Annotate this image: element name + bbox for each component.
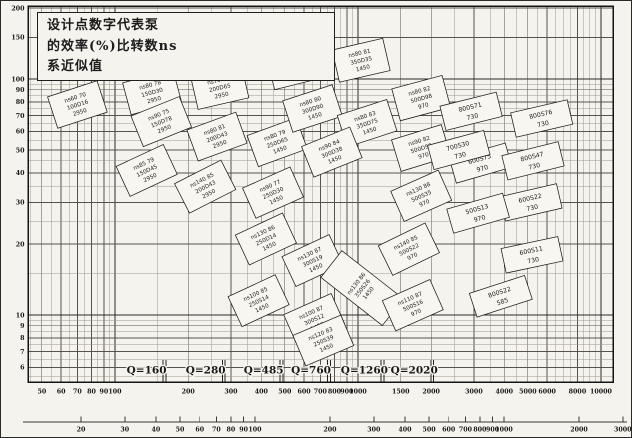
y-tick-label: 100 xyxy=(11,76,25,83)
pump-label: ns60 70100D162950 xyxy=(48,81,108,128)
x-tick-label: 50 xyxy=(37,389,46,396)
q-boundary-label: Q=1260 xyxy=(341,365,388,377)
x-tick-label: 70 xyxy=(73,389,82,396)
pump-label: 800S47730 xyxy=(502,142,564,180)
y-tick-label: 30 xyxy=(16,200,25,207)
x-tick-label: 6000 xyxy=(538,389,556,396)
second-axis-tick-label: 30 xyxy=(120,427,129,434)
second-axis-tick-label: 20 xyxy=(77,427,86,434)
pump-label-box xyxy=(502,142,564,180)
note-line-3: 系近似值 xyxy=(47,57,325,78)
pump-label: ns80 80300D901450 xyxy=(283,85,343,132)
pump-label: 500S13970 xyxy=(447,193,510,233)
x-tick-label: 10000 xyxy=(590,389,613,396)
second-axis-tick-label: 40 xyxy=(152,427,161,434)
y-tick-label: 9 xyxy=(20,323,24,330)
x-tick-label: 100 xyxy=(108,389,122,396)
second-axis-tick-label: 100 xyxy=(248,427,262,434)
y-tick-label: 20 xyxy=(16,241,25,248)
second-axis-tick-label: 800 xyxy=(473,427,487,434)
y-tick-label: 6 xyxy=(20,365,25,372)
y-tick-label: 10 xyxy=(16,312,25,319)
pump-label: 800S71730 xyxy=(440,92,502,130)
y-tick-label: 7 xyxy=(20,349,24,356)
y-tick-label: 40 xyxy=(16,170,25,177)
pump-spectrum-chart: ns60 70100D162950ns80 78150D302950ns70 7… xyxy=(0,0,632,438)
q-boundary-label: Q=485 xyxy=(244,365,284,377)
y-tick-label: 150 xyxy=(11,35,25,42)
x-tick-label: 80 xyxy=(87,389,96,396)
q-boundary-label: Q=760 xyxy=(291,365,331,377)
pump-label: ns80 81200D432950 xyxy=(187,112,247,161)
second-axis-tick-label: 3000 xyxy=(614,427,632,434)
pump-label: ns85 79150D452950 xyxy=(116,144,177,196)
second-axis-tick-label: 50 xyxy=(176,427,185,434)
x-tick-label: 400 xyxy=(255,389,269,396)
second-axis-tick-label: 1000 xyxy=(495,427,513,434)
pump-label-box xyxy=(469,275,532,317)
pump-label: ns110 87500S16970 xyxy=(382,280,443,331)
x-tick-label: 60 xyxy=(57,389,66,396)
q-boundary-label: Q=160 xyxy=(127,365,167,377)
second-axis-tick-label: 2000 xyxy=(570,427,588,434)
second-axis-tick-label: 60 xyxy=(195,427,204,434)
second-axis-tick-label: 80 xyxy=(226,427,235,434)
second-axis-tick-label: 90 xyxy=(239,427,248,434)
second-axis-tick-label: 600 xyxy=(442,427,456,434)
second-axis-tick-label: 70 xyxy=(212,427,221,434)
q-boundary-label: Q=2020 xyxy=(391,365,438,377)
y-tick-label: 70 xyxy=(16,113,25,120)
second-axis-tick-label: 400 xyxy=(398,427,412,434)
pump-label: ns90 77250D301450 xyxy=(243,167,304,218)
y-tick-label: 8 xyxy=(20,335,25,342)
pump-label-box xyxy=(501,237,563,274)
second-axis-tick-label: 300 xyxy=(367,427,381,434)
pump-label-box xyxy=(447,193,510,233)
x-tick-label: 500 xyxy=(278,389,292,396)
x-tick-label: 2000 xyxy=(422,389,440,396)
x-tick-label: 1500 xyxy=(392,389,410,396)
x-tick-label: 3000 xyxy=(465,389,483,396)
second-axis-tick-label: 700 xyxy=(459,427,473,434)
y-tick-label: 90 xyxy=(16,87,25,94)
x-tick-label: 5000 xyxy=(519,389,537,396)
x-tick-label: 200 xyxy=(182,389,196,396)
pump-label: ns140 85200D432950 xyxy=(175,160,236,213)
x-tick-label: 600 xyxy=(298,389,312,396)
pump-label-box xyxy=(440,92,502,130)
y-tick-label: 60 xyxy=(16,129,25,136)
y-tick-label: 50 xyxy=(16,147,25,154)
pump-label: ns140 85500S22970 xyxy=(378,223,439,275)
pump-label: ns90 84300D381450 xyxy=(302,127,363,177)
pump-label: ns130 88500S35970 xyxy=(391,170,452,221)
x-tick-label: 4000 xyxy=(496,389,514,396)
pump-label: 800S22585 xyxy=(469,275,532,317)
pump-label: 600S11730 xyxy=(501,237,563,274)
pump-label: ns100 85250S141450 xyxy=(228,275,289,327)
note-line-1: 设计点数字代表泵 xyxy=(47,16,325,37)
q-boundary-label: Q=280 xyxy=(186,365,226,377)
second-axis-tick-label: 500 xyxy=(422,427,436,434)
x-tick-label: 1000 xyxy=(349,389,367,396)
y-tick-label: 200 xyxy=(11,5,25,12)
second-axis-tick-label: 200 xyxy=(323,427,337,434)
x-tick-label: 8000 xyxy=(569,389,587,396)
chart-note-box: 设计点数字代表泵 的效率(%)比转数ns 系近似值 xyxy=(37,12,335,81)
x-tick-label: 300 xyxy=(224,389,238,396)
x-tick-label: 700 xyxy=(314,389,328,396)
y-tick-label: 80 xyxy=(16,99,25,106)
note-line-2: 的效率(%)比转数ns xyxy=(47,37,325,58)
